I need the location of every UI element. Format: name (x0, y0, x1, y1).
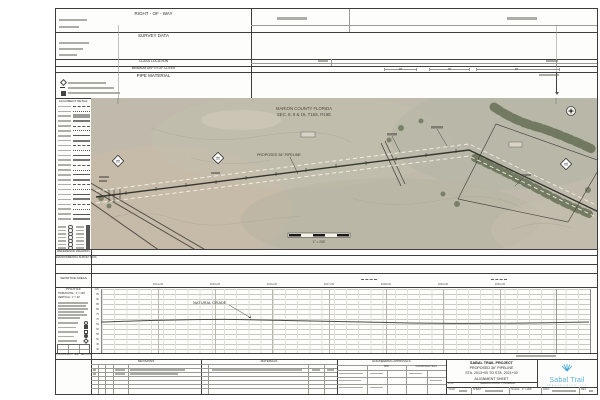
pipe-legend-diamond-icon (60, 79, 67, 86)
drawing-element (130, 369, 185, 371)
elevation-tick-label: 50 (96, 338, 99, 341)
drawing-element (431, 126, 443, 129)
north-arrow-icon (567, 107, 576, 116)
drawing-element (398, 125, 404, 131)
drawing-element (59, 19, 87, 21)
drawing-element (84, 321, 88, 325)
legend-label-bar (58, 155, 71, 157)
drawing-element (339, 387, 363, 389)
elevation-tick-label: 100 (95, 288, 99, 291)
right-of-way-title: RIGHT - OF - WAY (56, 12, 251, 17)
legend-label-bar (58, 184, 71, 186)
scale-value: 1" = 200' (522, 389, 532, 392)
survey-data-title: SURVEY DATA (56, 34, 251, 39)
aerial-map: MARION COUNTY FLORIDA SEC. 8, 9 & 16, T1… (91, 98, 597, 249)
legend-symbol (73, 189, 90, 190)
drawing-element (507, 17, 537, 20)
drawing-element (337, 377, 446, 378)
page: { "header": { "right_of_way": "RIGHT - O… (0, 0, 600, 400)
legend-symbol (73, 198, 90, 200)
elevation-axis: 100959085807570656055504540 (91, 289, 100, 353)
drawing-element (99, 176, 109, 178)
drawing-element (515, 68, 518, 70)
drawing-element (98, 364, 99, 394)
legend-label-bar (58, 130, 71, 132)
drawing-element (58, 302, 88, 304)
drawing-element (84, 330, 88, 334)
approvals-construction-header: CONSTRUCTION (406, 366, 446, 369)
drawing-element (327, 369, 334, 371)
dwg-label: DWG: (543, 389, 550, 392)
legend-label-bar (58, 135, 71, 137)
drawing-element (337, 370, 446, 371)
min-depth-title: MINIMUM DEPTH OF COVER (56, 67, 251, 71)
title-block-project: SABAL TRAIL PROJECT (446, 361, 537, 365)
elevation-tick-label: 45 (96, 343, 99, 346)
legend-symbol (73, 174, 90, 175)
legend-symbol (73, 150, 90, 151)
drawing-element (308, 364, 309, 394)
legend-label-bar (58, 233, 66, 235)
legend-label-bar (58, 164, 71, 166)
drawing-element (469, 68, 470, 71)
drawing-element (277, 17, 307, 20)
natural-grade-label: NATURAL GRADE (193, 300, 227, 305)
drawing-element (339, 380, 361, 382)
logo-subtitle: TRANSMISSION, LLC (537, 385, 597, 387)
down-arrow-icon (555, 92, 559, 95)
legend-label-bar (76, 244, 84, 246)
drawing-element (115, 373, 125, 375)
drawing-element (429, 68, 430, 71)
drawing-element (115, 369, 125, 371)
natural-grade-leader (229, 305, 251, 318)
drawing-element (56, 273, 597, 274)
legend-label-bar (58, 213, 71, 215)
drawing-element (579, 387, 580, 394)
drawing-element (251, 25, 597, 26)
legend-label-bar (58, 230, 66, 232)
legend-symbol (73, 209, 90, 210)
approvals-title: ENGINEERING APPROVALS (337, 360, 446, 363)
drawing-element (68, 87, 114, 89)
drawing-element (59, 42, 89, 44)
drawing-element (324, 364, 325, 394)
environmental-survey-title: ENVIRONMENTAL SURVEY DATA (56, 257, 91, 260)
legend-label-bar (58, 125, 71, 127)
drawing-element (84, 325, 88, 329)
drawing-element (339, 373, 363, 375)
drawing-element (56, 264, 597, 265)
drawing-element (68, 92, 120, 94)
drawing-element (58, 322, 78, 324)
legend-row (57, 216, 90, 221)
elevation-tick-label: 75 (96, 313, 99, 316)
legend-label-bar (58, 145, 71, 147)
drawing-element (211, 172, 220, 174)
drawing-element (349, 9, 350, 32)
legend-symbol (73, 111, 90, 112)
drawing-element (441, 192, 446, 197)
legend-label-bar (58, 150, 71, 152)
scale-label: SCALE: (511, 389, 520, 392)
title-block-stations: STA. 2013+00 TO STA. 2021+00 (446, 372, 537, 376)
legend-symbol (73, 140, 90, 142)
county-label-line2: SEC. 8, 9 & 16, T16S, R19E (277, 112, 331, 117)
drawing-element (552, 390, 576, 392)
legend-symbol (73, 165, 90, 166)
drawing-element (60, 87, 65, 88)
drawing-element (59, 26, 79, 28)
legend-label-bar (58, 218, 71, 220)
elevation-tick-label: 90 (96, 298, 99, 301)
legend-label-bar (58, 169, 71, 171)
drawing-element (56, 353, 597, 354)
utility-legend (57, 225, 90, 250)
drawing-element (384, 68, 385, 71)
legend-symbol (73, 184, 90, 185)
drawing-element (516, 355, 556, 357)
legend-symbol (73, 170, 90, 171)
legend-symbol (73, 145, 90, 146)
station-tick-label: 2019+00 (431, 283, 455, 286)
drawing-element (416, 68, 417, 71)
station-tick-label: 2014+00 (146, 283, 170, 286)
county-label-line1: MARION COUNTY FLORIDA (276, 106, 332, 111)
drawing-element (58, 314, 87, 316)
profile-vertical-scale: VERTICAL: 1" = 20' (58, 297, 80, 300)
drawing-element (337, 234, 349, 237)
legend-label-bar (58, 111, 71, 113)
class-location-title: CLASS LOCATION (56, 60, 251, 64)
elevation-tick-label: 85 (96, 303, 99, 306)
legend-label-bar (58, 115, 71, 117)
drawing-element (212, 369, 302, 371)
drawing-element (430, 380, 442, 382)
pipe-material-title: PIPE MATERIAL (56, 74, 251, 79)
hydrostatic-title: HYDROSTATIC TEST SECTION (56, 354, 91, 357)
legend-symbol (73, 179, 90, 181)
header-left-box-divider (251, 9, 252, 98)
approvals-bid-header: BID (367, 366, 406, 369)
drawing-element (562, 364, 572, 371)
drawing-element (485, 390, 503, 392)
logo-block: Sabal Trail TRANSMISSION, LLC (537, 359, 597, 387)
legend-label-bar (58, 194, 71, 196)
drawing-element (93, 369, 96, 371)
drawing-element (58, 305, 86, 307)
map-scale-label: 1" = 200' (313, 240, 326, 244)
drawing-element (541, 387, 542, 394)
legend-symbol (73, 159, 90, 161)
drawing-element (370, 387, 383, 389)
legend-label-bar (58, 244, 66, 246)
legend-label-bar (76, 230, 84, 232)
legend-symbol (73, 120, 90, 122)
drawing-element (312, 369, 320, 371)
drawing-element (427, 370, 428, 394)
legend-label-bar (58, 208, 71, 210)
drawing-element (387, 138, 392, 143)
drawing-element (448, 68, 451, 70)
legend-label-bar (58, 226, 66, 228)
station-tick-label: 2016+00 (260, 283, 284, 286)
alignment-detail-legend (57, 104, 90, 221)
rev-label: REV: (581, 389, 587, 392)
elevation-tick-label: 40 (96, 348, 99, 351)
drawing-element (58, 349, 89, 350)
drawing-element (559, 68, 560, 71)
match-line-right (556, 25, 557, 72)
loc-value: MARION COUNTY, FLORIDA (458, 383, 537, 386)
drawing-element (201, 110, 281, 130)
reference-drawing-title: REFERENCE DRAWING (56, 250, 91, 253)
legend-label-bar (58, 179, 71, 181)
station-tick-label: 2020+00 (488, 283, 512, 286)
drawing-element (521, 174, 531, 176)
station-tick-label: 2017+00 (317, 283, 341, 286)
drawing-element (208, 364, 209, 394)
drawing-element (289, 234, 301, 237)
logo-name: Sabal Trail (537, 377, 597, 385)
legend-label-bar (58, 120, 71, 122)
legend-label-bar (58, 140, 71, 142)
drawing-element (313, 234, 325, 237)
natural-grade-line (101, 319, 589, 323)
drawing-element (331, 59, 332, 66)
drawing-element (59, 54, 77, 56)
pipeline-leader-label: PROPOSED 36" PIPELINE (257, 153, 301, 157)
legend-symbol (73, 130, 90, 131)
sensitive-area-mark (361, 279, 377, 280)
drawing-element (113, 364, 114, 394)
legend-label-bar (58, 174, 71, 176)
station-tick-label: 2018+00 (374, 283, 398, 286)
elevation-tick-label: 55 (96, 333, 99, 336)
drawing-element (58, 311, 84, 313)
drawing-element (387, 133, 397, 136)
legend-symbol (73, 218, 90, 220)
drawing-element (68, 82, 106, 84)
match-line-left (118, 25, 119, 98)
drawing-element (56, 255, 597, 256)
legend-symbol (73, 194, 90, 195)
legend-symbol (73, 106, 90, 107)
drawing-element (370, 373, 383, 375)
drawing-element (128, 364, 129, 394)
legend-label-bar (58, 240, 66, 242)
year-label: YEAR: (448, 389, 456, 392)
drawing-element (454, 201, 460, 207)
title-block-pipeline: PROPOSED 36" PIPELINE (446, 367, 537, 371)
profile-plot: NATURAL GRADE (101, 289, 589, 353)
drawing-element (58, 336, 74, 338)
legend-label-bar (58, 189, 71, 191)
legend-label-bar (58, 199, 71, 201)
elevation-tick-label: 70 (96, 318, 99, 321)
drawing-element (419, 119, 424, 124)
legend-label-bar (76, 226, 84, 228)
drawing-element (59, 48, 83, 50)
map-label-box (301, 132, 315, 137)
drawing-element (58, 308, 88, 310)
elevation-tick-label: 60 (96, 328, 99, 331)
drawing-element (93, 373, 96, 375)
legend-symbol (73, 214, 90, 215)
drawing-element (318, 60, 328, 62)
sabal-trail-logo-icon (560, 363, 574, 372)
legend-label-bar (76, 237, 84, 239)
elevation-tick-label: 80 (96, 308, 99, 311)
legend-label-bar (58, 237, 66, 239)
pipe-legend-square-icon (61, 91, 66, 96)
drawing-element (459, 390, 467, 392)
legend-symbol (73, 204, 90, 205)
drawing-element (251, 63, 597, 64)
drawing-element (509, 387, 510, 394)
drawing-element (56, 249, 597, 250)
drawing-element (99, 180, 107, 182)
legend-label-bar (58, 106, 71, 108)
drawing-element (409, 373, 422, 375)
station-tick-label: 2015+00 (203, 283, 227, 286)
elevation-tick-label: 65 (96, 323, 99, 326)
drawing-element (58, 327, 76, 329)
drawing-element (58, 340, 77, 342)
legend-label-bar (76, 240, 84, 242)
drawing-element (471, 387, 472, 394)
drawing-element (399, 68, 402, 70)
drawing-element (539, 74, 559, 76)
legend-symbol (73, 114, 90, 118)
sensitive-areas-title: SENSITIVE AREAS (56, 277, 91, 280)
drawing-element (58, 331, 78, 333)
drawing-element (476, 68, 477, 71)
sensitive-area-mark (491, 279, 507, 280)
legend-label-bar (58, 204, 71, 206)
legend-label-bar (76, 233, 84, 235)
legend-symbol (73, 135, 90, 136)
map-label-box (509, 142, 522, 147)
drawing-element (83, 338, 89, 344)
legend-symbol (73, 155, 90, 156)
title-block-sheet-type: ALIGNMENT SHEET (446, 378, 537, 382)
drawing-element (387, 370, 388, 394)
drawing-element (337, 384, 446, 385)
legend-symbol (73, 126, 90, 127)
drawing-element (105, 364, 106, 394)
drawing-element (130, 373, 178, 375)
alignment-sheet: RIGHT - OF - WAY SURVEY DATA CLASS LOCAT… (55, 8, 598, 395)
drawing-element (58, 317, 80, 319)
drawing-element (589, 390, 593, 392)
drawing-element (107, 204, 112, 209)
alignment-detail-title: ALIGNMENT DETAIL: (56, 100, 91, 103)
legend-label-bar (58, 159, 71, 161)
materials-title: MATERIALS (201, 360, 337, 363)
revisions-title: REVISIONS (91, 360, 201, 363)
elevation-tick-label: 95 (96, 293, 99, 296)
loc-label: LOC: (448, 383, 454, 386)
sheet-label: SHEET: (473, 389, 482, 392)
